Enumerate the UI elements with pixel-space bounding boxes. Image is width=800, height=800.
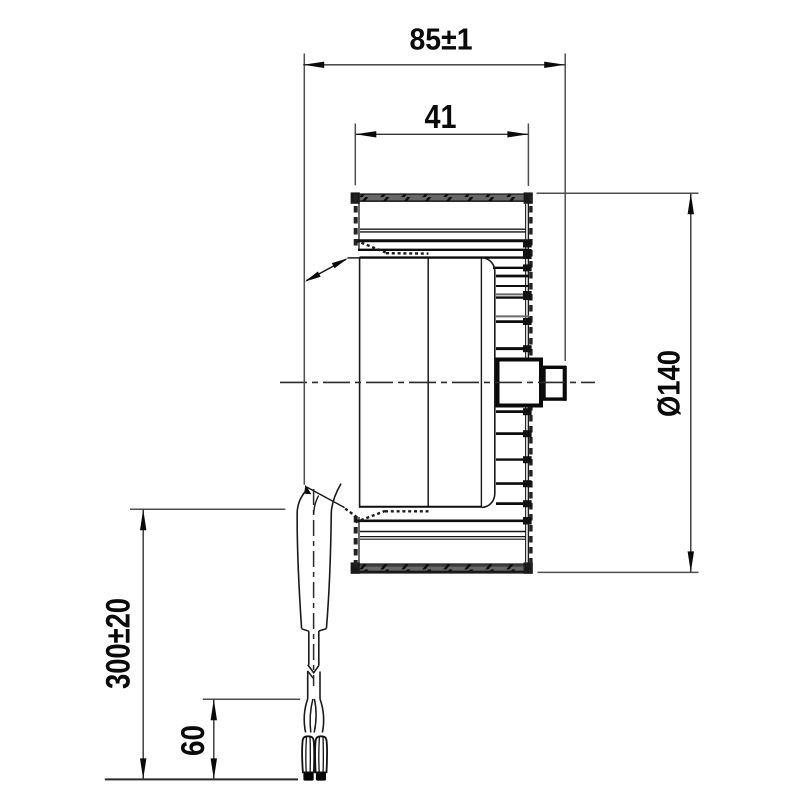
svg-text:60: 60 xyxy=(174,725,211,756)
svg-text:41: 41 xyxy=(425,99,457,136)
svg-text:300±20: 300±20 xyxy=(100,598,138,689)
svg-text:85±1: 85±1 xyxy=(410,23,473,57)
svg-text:Ø140: Ø140 xyxy=(651,350,687,417)
